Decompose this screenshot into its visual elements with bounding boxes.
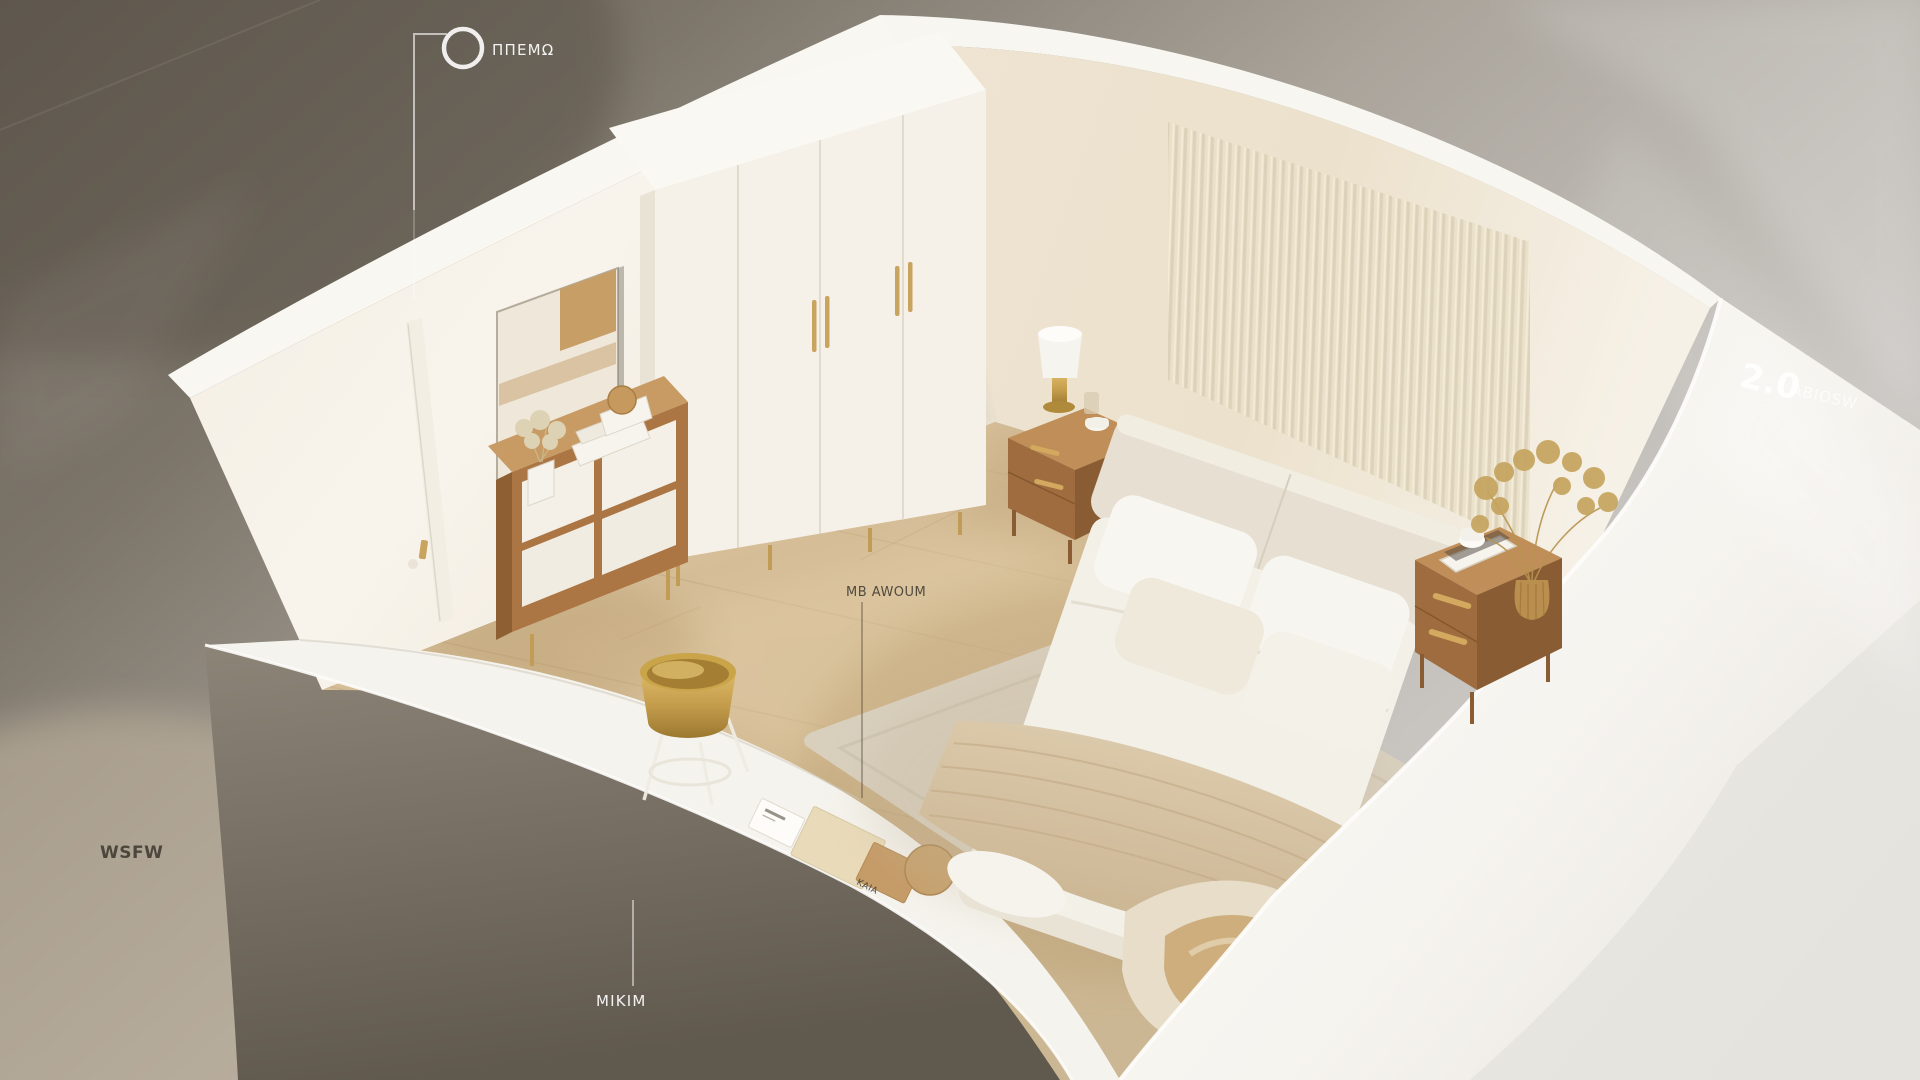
bedroom-isometric-render: KAIA (0, 0, 1920, 1080)
bed-annotation-label: MB AWOUM (846, 585, 926, 600)
wardrobe-handle (908, 262, 913, 312)
hotspot-label: ΠΠΕΜΩ (492, 41, 554, 59)
dresser-side (496, 472, 512, 640)
render-viewport: KAIA (0, 0, 1920, 1080)
wood-ball-decor (608, 386, 636, 414)
stool-highlight (652, 661, 704, 679)
floor-left-label: WSFW (100, 843, 163, 863)
lamp-shade-top (1038, 326, 1082, 342)
cup-saucer (1085, 418, 1109, 428)
wardrobe-handle (825, 296, 830, 348)
wardrobe-handle (895, 266, 900, 316)
wardrobe-handle (812, 300, 817, 352)
glass-cup (1084, 392, 1099, 414)
lamp-foot (1043, 401, 1075, 413)
front-annotation-label: MIKIM (596, 992, 647, 1010)
